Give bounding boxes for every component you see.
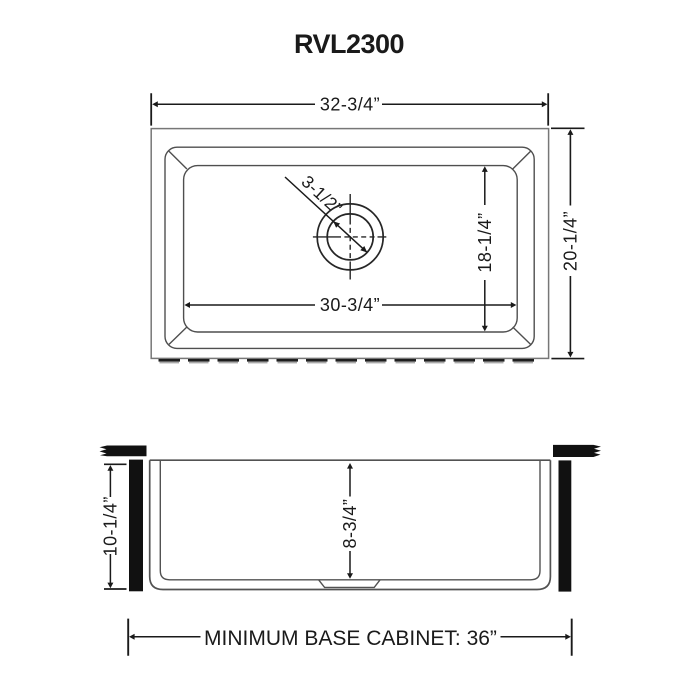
svg-text:RVL2300: RVL2300 [294,29,404,59]
svg-text:10-1/4”: 10-1/4” [101,496,121,556]
svg-text:20-1/4”: 20-1/4” [561,211,581,271]
svg-text:32-3/4”: 32-3/4” [320,94,380,114]
svg-text:30-3/4”: 30-3/4” [320,295,380,315]
svg-text:MINIMUM BASE CABINET: 36”: MINIMUM BASE CABINET: 36” [204,627,497,650]
svg-text:18-1/4”: 18-1/4” [475,212,495,272]
svg-text:8-3/4”: 8-3/4” [340,499,360,549]
